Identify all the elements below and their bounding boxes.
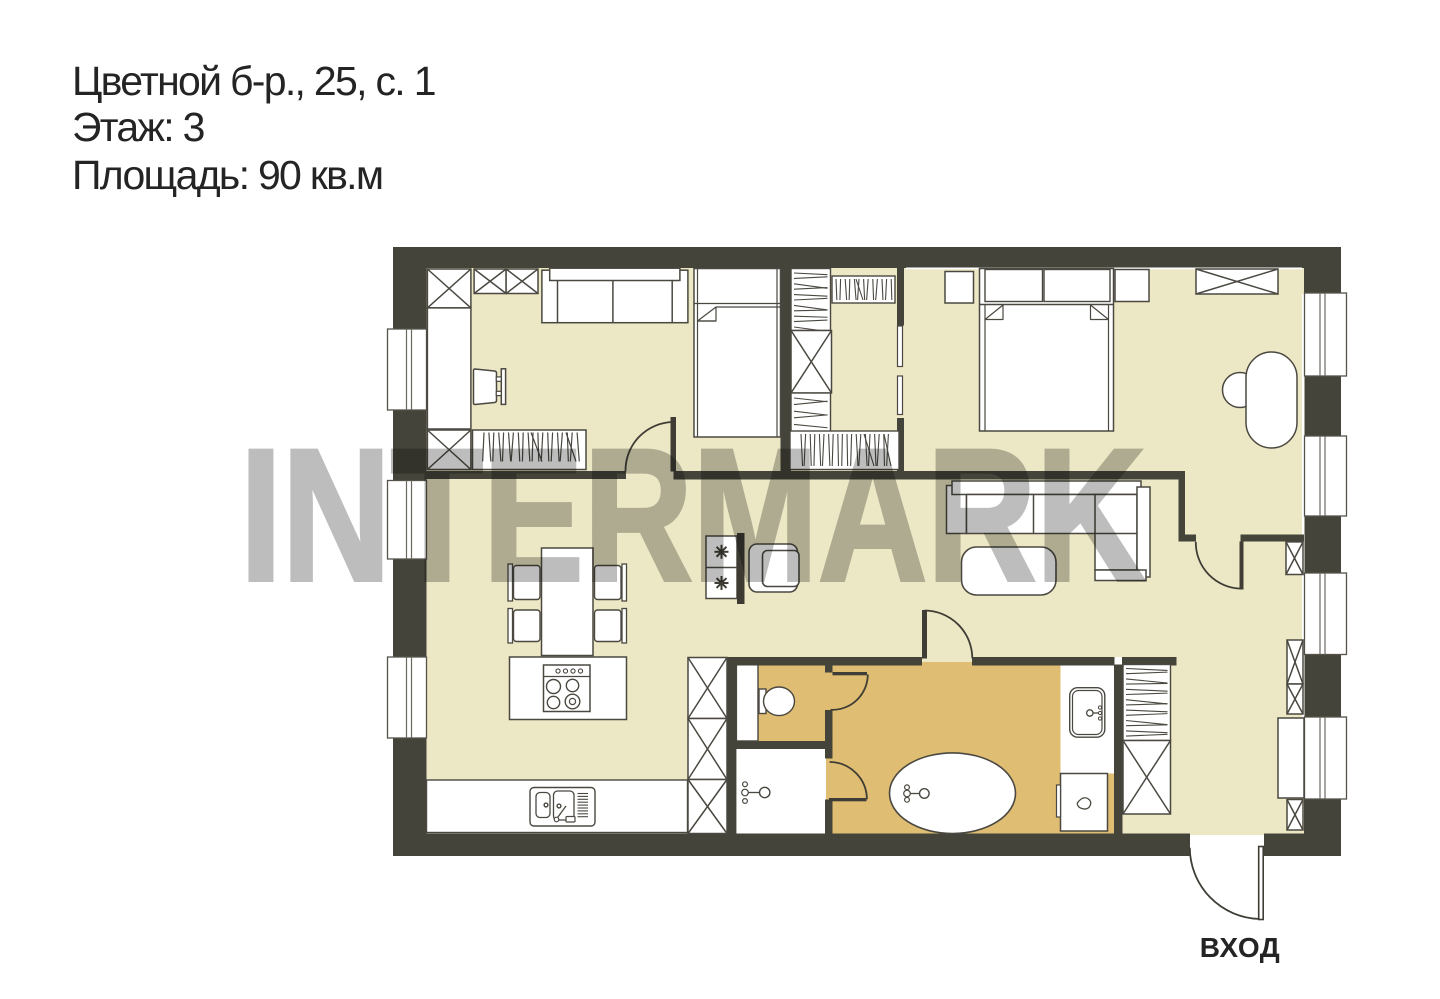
svg-text:Цветной б-р., 25, с. 1: Цветной б-р., 25, с. 1	[72, 58, 435, 104]
svg-text:INTERMARK: INTERMARK	[240, 410, 1145, 620]
svg-text:ВХОД: ВХОД	[1200, 932, 1280, 963]
svg-text:Этаж: 3: Этаж: 3	[72, 104, 204, 150]
svg-text:Площадь: 90 кв.м: Площадь: 90 кв.м	[72, 152, 382, 198]
